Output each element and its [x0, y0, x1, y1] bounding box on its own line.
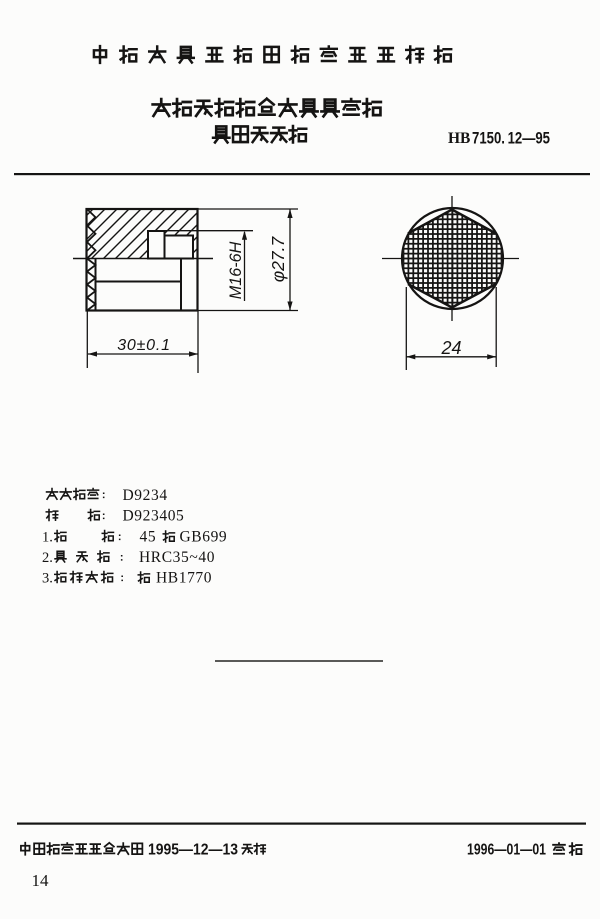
svg-text:1995—12—13: 1995—12—13	[148, 842, 238, 859]
svg-text:24: 24	[440, 338, 461, 358]
svg-text:30±0.1: 30±0.1	[117, 337, 171, 354]
svg-text:D9234: D9234	[123, 487, 168, 504]
svg-text:7150. 12—95: 7150. 12—95	[472, 129, 550, 148]
svg-text:D923405: D923405	[123, 508, 185, 525]
svg-text:φ27.7: φ27.7	[268, 235, 288, 282]
svg-text:HB1770: HB1770	[156, 570, 212, 587]
svg-text:1996—01—01: 1996—01—01	[467, 842, 546, 859]
svg-text:2.: 2.	[42, 550, 53, 566]
svg-text:HB: HB	[448, 130, 470, 147]
svg-text:1.: 1.	[42, 530, 53, 546]
svg-text:HRC35~40: HRC35~40	[139, 549, 215, 566]
svg-text:M16-6H: M16-6H	[227, 241, 245, 299]
svg-text:GB699: GB699	[180, 529, 228, 546]
svg-text:14: 14	[32, 871, 50, 890]
svg-text:3.: 3.	[42, 571, 53, 587]
svg-text:45: 45	[140, 529, 157, 546]
